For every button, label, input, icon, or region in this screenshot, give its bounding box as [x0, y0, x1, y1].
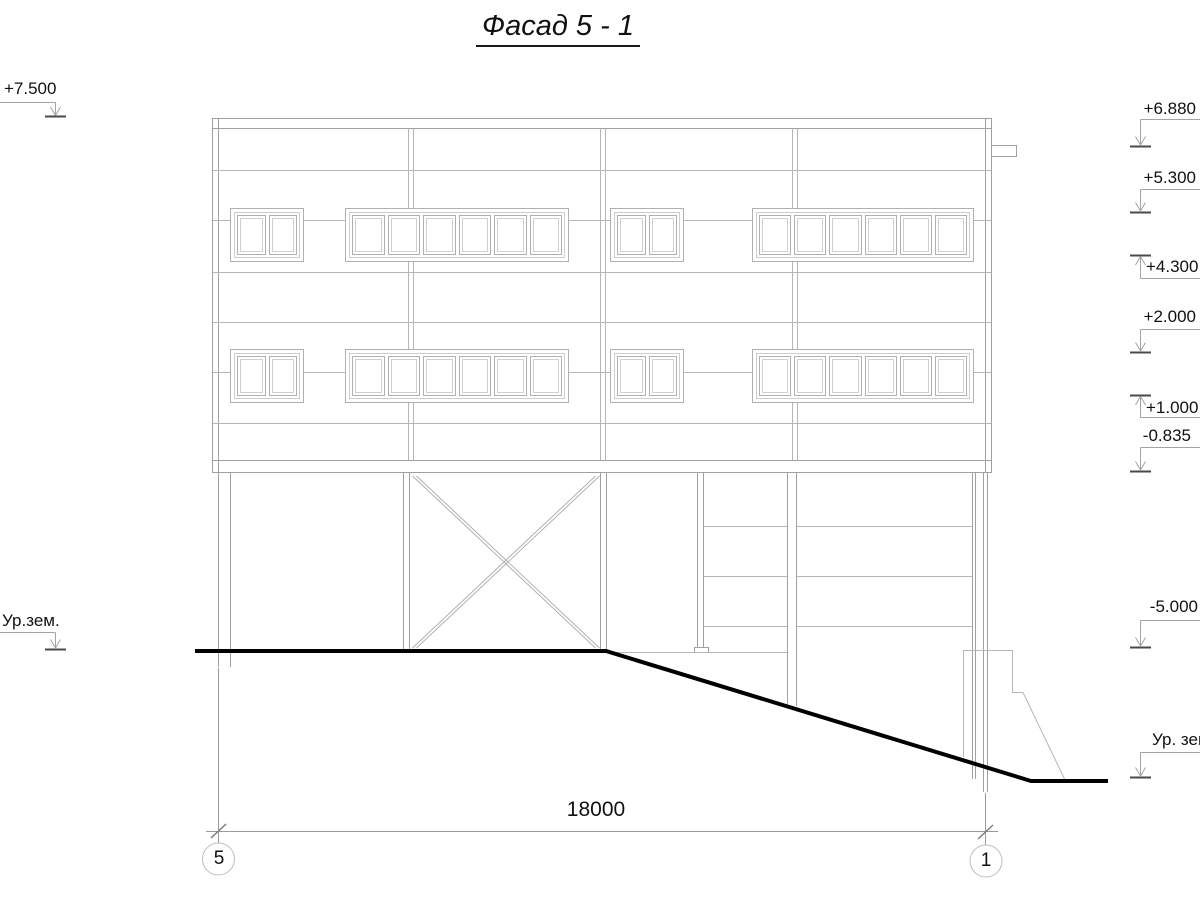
- roof-scupper: [992, 146, 1017, 157]
- window-pane: [759, 215, 791, 255]
- elevation-marker-right-ground: [1130, 753, 1200, 778]
- window-group: [610, 208, 684, 262]
- window-pane: [269, 356, 298, 396]
- window-pane: [865, 215, 897, 255]
- window-pane: [900, 215, 932, 255]
- window-frame: [234, 212, 300, 258]
- elevation-label-4300: +4.300: [1146, 257, 1198, 276]
- window-pane: [237, 215, 266, 255]
- window-pane: [423, 356, 456, 396]
- window-frame: [614, 353, 680, 399]
- window-pane: [794, 356, 826, 396]
- drawing-title-text: Фасад 5 - 1: [476, 10, 640, 47]
- window-group: [752, 349, 974, 403]
- window-pane: [794, 215, 826, 255]
- window-group: [230, 208, 304, 262]
- elevation-marker-2000: [1130, 330, 1200, 353]
- window-frame: [756, 353, 970, 399]
- elevation-drawing: Фасад 5 - 1 +7.500 Ур.зем. +6.880 +5.300…: [0, 0, 1200, 900]
- window-pane: [423, 215, 456, 255]
- window-pane: [494, 215, 527, 255]
- facade-wall: [213, 119, 992, 473]
- elevation-label-5000: -5.000: [1040, 597, 1198, 616]
- window-pane: [865, 356, 897, 396]
- window-pane: [935, 215, 967, 255]
- elevation-marker-left-ground: [0, 633, 66, 650]
- window-pane: [935, 356, 967, 396]
- window-pane: [759, 356, 791, 396]
- elevation-label-7500: +7.500: [4, 79, 56, 98]
- window-group: [230, 349, 304, 403]
- window-pane: [649, 356, 678, 396]
- window-pane: [237, 356, 266, 396]
- elevation-label-left-ground: Ур.зем.: [2, 611, 60, 630]
- window-pane: [388, 215, 421, 255]
- elevation-label-2000: +2.000: [1040, 307, 1196, 326]
- elevation-marker-5300: [1130, 190, 1200, 213]
- window-frame: [234, 353, 300, 399]
- window-pane: [649, 215, 678, 255]
- drawing-title: Фасад 5 - 1: [438, 10, 678, 42]
- ground-line: [195, 651, 1108, 781]
- window-pane: [829, 215, 861, 255]
- window-frame: [614, 212, 680, 258]
- drawing-linework: [0, 0, 1200, 900]
- window-group: [345, 349, 569, 403]
- window-frame: [349, 353, 565, 399]
- window-pane: [617, 215, 646, 255]
- x-bracing: [413, 476, 600, 648]
- window-pane: [530, 215, 563, 255]
- elevation-marker-6880: [1130, 120, 1200, 147]
- elevation-marker-left-7500: [0, 103, 66, 117]
- elevation-marker-5000: [1130, 621, 1200, 648]
- window-group: [345, 208, 569, 262]
- elevation-label-6880: +6.880: [1040, 99, 1196, 118]
- dimension-value: 18000: [536, 798, 656, 822]
- elevation-label-0835: -0.835: [1040, 426, 1191, 445]
- axis-bubbles: [203, 843, 1003, 877]
- facade-mullions: [409, 129, 798, 461]
- window-pane: [352, 356, 385, 396]
- axis-bubble-1: 1: [969, 850, 1003, 872]
- window-pane: [494, 356, 527, 396]
- elevation-label-right-ground: Ур. зем.: [1152, 730, 1200, 749]
- elevation-marker-0835: [1130, 448, 1200, 472]
- window-frame: [756, 212, 970, 258]
- window-pane: [352, 215, 385, 255]
- window-pane: [388, 356, 421, 396]
- window-pane: [617, 356, 646, 396]
- pilotis-columns: [219, 473, 988, 792]
- axis-bubble-5: 5: [202, 848, 236, 870]
- elevation-label-5300: +5.300: [1040, 168, 1196, 187]
- window-pane: [530, 356, 563, 396]
- window-pane: [459, 356, 492, 396]
- foundation: [963, 650, 1065, 780]
- elevation-label-1000: +1.000: [1146, 398, 1198, 417]
- stair-rails: [607, 527, 972, 653]
- window-frame: [349, 212, 565, 258]
- window-pane: [900, 356, 932, 396]
- window-pane: [459, 215, 492, 255]
- window-pane: [269, 215, 298, 255]
- window-group: [610, 349, 684, 403]
- window-group: [752, 208, 974, 262]
- window-pane: [829, 356, 861, 396]
